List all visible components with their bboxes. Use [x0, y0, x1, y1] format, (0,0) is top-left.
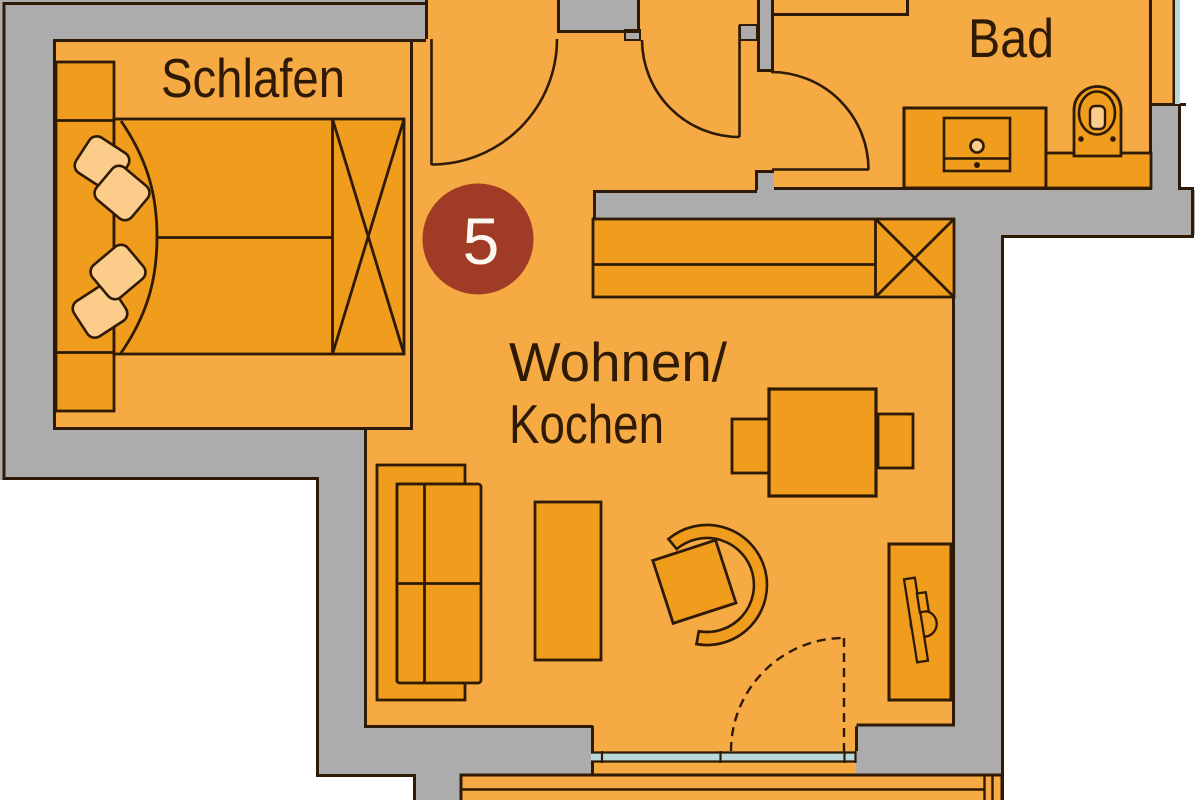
svg-text:Wohnen/: Wohnen/: [509, 331, 728, 393]
svg-text:Schlafen: Schlafen: [161, 47, 345, 109]
svg-text:Bad: Bad: [968, 7, 1054, 69]
svg-text:5: 5: [463, 204, 500, 278]
svg-text:Kochen: Kochen: [509, 393, 664, 455]
